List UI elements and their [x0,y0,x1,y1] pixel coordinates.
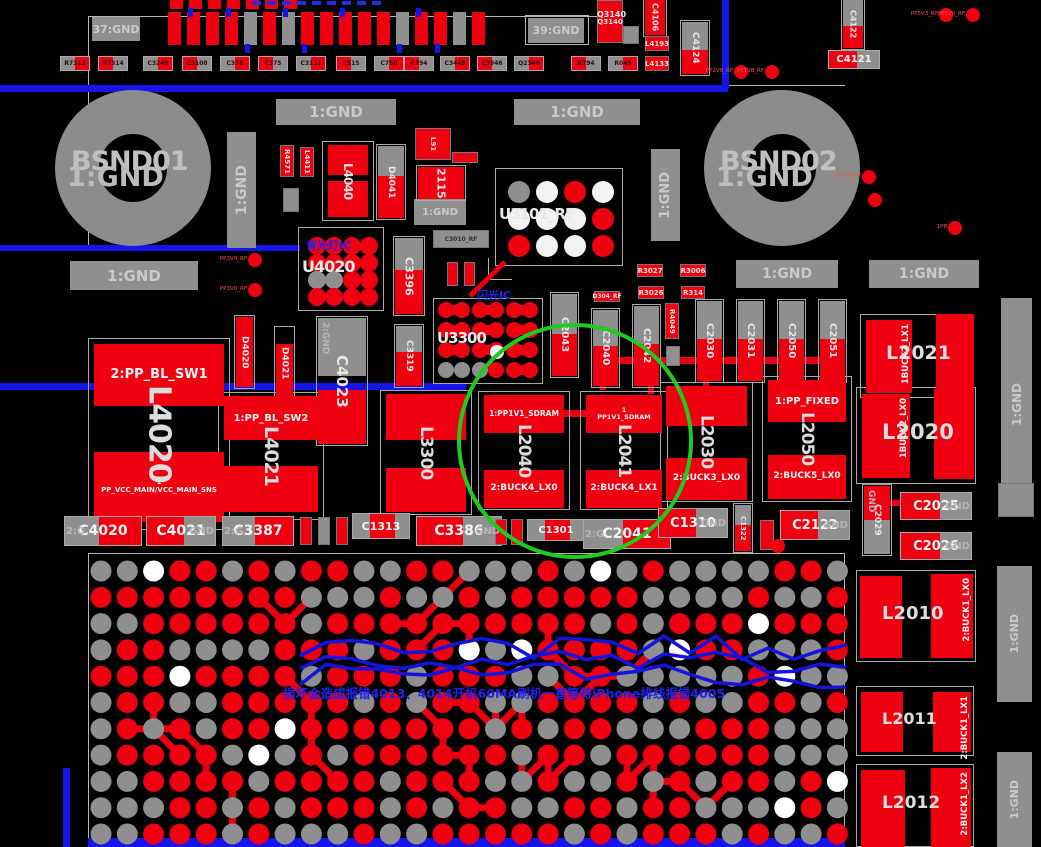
component-L4411[interactable]: L4411 [300,147,314,177]
bga-ball [748,718,769,739]
bga-ball [590,639,611,660]
shield-pad [396,12,409,45]
bga-ball [301,718,322,739]
bga-ball [564,561,585,582]
component-R314[interactable]: R314 [681,286,705,299]
bga-ball [459,745,480,766]
bga-ball [748,587,769,608]
bga-ball [538,639,559,660]
component-ref: C1310GND [658,508,728,538]
trace-blue [88,838,845,847]
component-ref: Q3140 [597,10,637,22]
bga-ball [301,771,322,792]
bga-ball [617,561,638,582]
bga-ball [774,771,795,792]
bga-ball [432,718,453,739]
bga-ball [538,797,559,818]
bga-ball [248,692,269,713]
bga-ball [538,613,559,634]
bga-ball [406,613,427,634]
truncated-blue-text [252,1,261,5]
bga-ball [354,718,375,739]
truncated-blue-text [267,1,276,5]
bga-ball [248,639,269,660]
bga-ball [669,797,690,818]
small-part [623,26,639,44]
component-R3006[interactable]: R3006 [680,264,706,277]
component-ref: C2043 [552,294,577,376]
trace-red [548,624,601,677]
bga-ball [327,587,348,608]
component-ref: C2026GND [900,532,972,560]
component-ref: C3396 [395,238,423,314]
bga-ball [91,771,112,792]
component-D304_RF[interactable]: D304_RF [594,291,620,302]
bga-ball [643,561,664,582]
bga-ball [617,771,638,792]
trace-blue [0,85,728,92]
bga-ball [722,613,743,634]
bga-ball [432,561,453,582]
component-ref: D4020 [236,317,253,387]
shield-pad [301,12,314,45]
bga-ball [354,745,375,766]
bga-ball [117,718,138,739]
bga-ball [472,302,488,318]
small-part [998,483,1034,517]
component-ref: L4040 [322,141,374,221]
component-ref: C2050 [779,301,804,381]
component-ref: L2041 [580,391,668,510]
bga-ball [511,797,532,818]
small-part [300,517,312,545]
bga-ball [774,561,795,582]
gnd-label: 1:GND [70,261,198,290]
shield-pad [170,0,183,9]
bga-ball [117,666,138,687]
bga-ball [669,771,690,792]
component-L91[interactable]: L91 [415,128,451,160]
bga-ball [91,587,112,608]
bga-ball [643,613,664,634]
bga-ball [196,639,217,660]
bga-ball [695,613,716,634]
component-ref: R045 [608,56,638,71]
bga-ball [91,639,112,660]
bga-ball [169,692,190,713]
bga-ball [196,561,217,582]
bga-ball [301,797,322,818]
gnd-label: 37:GND [92,17,140,41]
bga-ball [801,639,822,660]
bga-ball [722,639,743,660]
bga-ball [722,587,743,608]
bga-ball [643,797,664,818]
bga-ball [617,745,638,766]
bga-ball [275,561,296,582]
component-ref: C375 [258,56,288,71]
component-ref: C1313 [352,513,410,539]
bga-ball [722,771,743,792]
bga-ball [590,745,611,766]
bga-ball [275,587,296,608]
test-pad [948,221,962,235]
bga-ball [222,666,243,687]
bga-ball [590,587,611,608]
component-ref: C3249 [143,56,173,71]
component-ref: 2115 [418,167,464,199]
truncated-blue-text [372,1,381,5]
bga-ball [801,692,822,713]
small-part [666,346,680,366]
trace-blue [245,44,250,53]
component-ref: C4122 [843,0,863,48]
component-ref: C1322 [735,505,751,551]
bga-ball [406,718,427,739]
bga-ball [196,718,217,739]
trace-red [496,703,522,729]
bga-ball [222,587,243,608]
component-ref: C2122GND [780,510,850,540]
component-ref: R7314 [98,56,128,71]
bga-ball [327,718,348,739]
trace-red [417,624,470,650]
bga-ball [485,561,506,582]
bga-ball [564,797,585,818]
bga-ball [143,692,164,713]
shield-pad [358,12,371,45]
bga-ball [432,639,453,660]
bga-ball [327,771,348,792]
component-ref: C4021GND [146,516,216,546]
test-pad [248,253,262,267]
bga-ball [590,561,611,582]
trace-blue [188,8,193,17]
component-ref: L2021 [886,342,968,367]
bga-ball [564,613,585,634]
trace-red [417,703,470,782]
small-part [464,262,475,286]
component-ref: C2042 [634,306,659,386]
bga-ball [143,718,164,739]
bga-ball [380,613,401,634]
bga-ball [117,639,138,660]
trace-red [522,755,575,781]
component-ref: U4020 [302,257,382,279]
trace-blue [300,652,846,673]
bga-ball [169,797,190,818]
screw-hole-gnd-label: 1:GND [67,162,187,192]
component-R3026[interactable]: R3026 [638,286,664,299]
component-ref: C3108 [182,56,212,71]
bga-ball [222,692,243,713]
component-ref: L2012 [882,793,970,816]
shield-pad [263,12,276,45]
component-ref: L2011 [882,709,970,731]
component-ref: Q2348 [514,56,544,71]
bga-ball [327,639,348,660]
component-ref: C2030 [697,301,722,381]
component-ref: R794 [571,56,601,71]
bga-ball [669,639,690,660]
bga-ball [485,797,506,818]
bga-ball [380,561,401,582]
bga-ball [695,639,716,660]
backlight_ic-note: 背光灯IC [306,237,386,251]
bga-ball [617,639,638,660]
shield-pad [434,12,447,45]
component-ref: L3300 [380,390,472,515]
bga-ball [669,561,690,582]
bga-ball [564,587,585,608]
bga-ball [801,771,822,792]
component-R4571[interactable]: R4571 [280,145,294,177]
test-pad-label: PP3V0_RF [209,286,247,294]
component-ref: R7313 [60,56,90,71]
bga-ball [275,639,296,660]
bga-ball [801,561,822,582]
trace-blue [283,8,288,17]
test-pad-label: 1P8 [909,224,947,232]
bga-ball [695,587,716,608]
board-outline-line [88,553,845,554]
bga-ball [406,587,427,608]
component-ref: L2010 [882,603,972,627]
bga-ball [354,613,375,634]
bga-ball [169,666,190,687]
gnd-label: 1:GND [414,199,466,225]
bga-ball [722,561,743,582]
bga-ball [360,288,378,306]
trace-red [443,703,522,729]
component-ref: L4020 [88,338,230,530]
component-ref: L2040 [478,391,570,510]
component-ref: C394 [404,56,434,71]
shield-pad [320,12,333,45]
bga-ball [801,666,822,687]
bga-ball [301,587,322,608]
bga-ball [564,745,585,766]
bga-ball [248,745,269,766]
component-ref: C3946 [477,56,507,71]
bga-ball [117,561,138,582]
bga-ball [511,745,532,766]
bga-ball [275,718,296,739]
trace-red [154,703,180,756]
test-pad-label: PP1V8_RF [823,173,861,181]
bga-ball [722,745,743,766]
bga-ball [454,302,470,318]
bga-ball [564,181,586,203]
component-ref: D4021 [276,328,293,398]
component-R4049[interactable]: R4049 [665,303,679,339]
bga-ball [564,771,585,792]
bga-ball [327,797,348,818]
component-ref: C3386GND [416,516,502,546]
component-ref: C2031 [738,301,763,381]
bga-ball [117,771,138,792]
component-ref: C40232:GND [318,318,366,444]
bga-ball [643,639,664,660]
bga-ball [222,718,243,739]
component-L4193[interactable]: L4193 [645,36,669,51]
bga-ball [301,639,322,660]
bga-ball [117,745,138,766]
bga-ball [354,561,375,582]
bga-ball [508,181,530,203]
small-part [283,188,299,212]
bga-ball [511,561,532,582]
small-part [336,517,348,545]
bga-ball [91,613,112,634]
bga-ball [222,639,243,660]
bga-ball [774,797,795,818]
bga-ball [774,639,795,660]
bga-ball [485,745,506,766]
bga-ball [248,613,269,634]
bga-ball [695,797,716,818]
bga-ball [196,771,217,792]
component-C3010_RF[interactable]: C3010_RF [433,230,489,248]
bga-ball [196,587,217,608]
component-ref: C40202:G [64,516,142,546]
bga-ball [380,639,401,660]
bga-ball [774,718,795,739]
bga-ball [617,797,638,818]
bga-ball [643,771,664,792]
bga-ball [354,797,375,818]
bga-ball [459,587,480,608]
component-ref: C758 [374,56,404,71]
bga-ball [301,745,322,766]
bga-ball [801,613,822,634]
bga-ball [91,718,112,739]
bga-ball [406,745,427,766]
bga-ball [774,692,795,713]
component-ref: L2050 [762,376,852,502]
component-L4133[interactable]: L4133 [645,56,669,71]
bga-ball [275,797,296,818]
bga-ball [459,718,480,739]
truncated-blue-text [312,1,321,5]
bga-ball [438,362,454,378]
truncated-blue-text [357,1,366,5]
small-part [447,262,458,286]
small-part [452,152,478,163]
bga-ball [748,771,769,792]
bga-ball [722,718,743,739]
bga-ball [169,745,190,766]
truncated-blue-text [327,1,336,5]
bga-ball [511,639,532,660]
bga-ball [506,302,522,318]
bga-ball [248,718,269,739]
bga-ball [222,745,243,766]
component-ref: C3319 [396,326,422,386]
bga-ball [564,718,585,739]
component-ref: C4124 [682,22,708,74]
component-ref: D4041 [378,146,404,218]
bga-ball [485,613,506,634]
bga-ball [643,745,664,766]
bga-ball [143,613,164,634]
bga-ball [222,797,243,818]
component-ref: U3101_RF [499,205,621,227]
bga-ball [488,362,504,378]
board-outline-line [488,279,512,280]
bga-ball [275,771,296,792]
bga-ball [169,639,190,660]
bga-ball [380,587,401,608]
bga-ball [143,797,164,818]
bga-ball [327,745,348,766]
bga-ball [695,745,716,766]
bga-ball [669,587,690,608]
trace-blue [416,8,421,17]
bga-ball [748,639,769,660]
bga-ball [143,745,164,766]
bga-ball [117,587,138,608]
bga-ball [459,561,480,582]
board-outline-line [488,258,489,280]
bga-ball [748,745,769,766]
bga-ball [590,613,611,634]
bga-ball [774,613,795,634]
test-pad [966,8,980,22]
component-ref: L4021 [218,392,324,520]
bga-ball [327,613,348,634]
component-R3027[interactable]: R3027 [637,264,663,277]
screw-hole-gnd-label: 1:GND [716,162,836,192]
component-ref: C4106 [645,0,665,35]
shield-pad [208,0,221,9]
bga-ball [774,666,795,687]
component-ref: C2029GND [864,486,890,554]
shield-pad [244,12,257,45]
bga-ball [248,771,269,792]
bga-ball [196,745,217,766]
bga-ball [695,561,716,582]
component-ref: C2025GND [900,492,972,520]
bga-ball [143,561,164,582]
bga-ball [590,718,611,739]
trace-blue [226,8,231,17]
bga-ball [196,613,217,634]
gnd-label: 39:GND [528,18,584,43]
bga-ball [643,718,664,739]
bga-ball [801,587,822,608]
test-pad [248,283,262,297]
bga-ball [354,771,375,792]
bga-ball [438,302,454,318]
bga-ball [536,181,558,203]
bga-ball [301,613,322,634]
component-ref: C1301 [527,519,585,541]
shield-pad [168,12,181,45]
truncated-blue-text [297,1,306,5]
bga-ball [432,771,453,792]
shield-pad [377,12,390,45]
board-view: 损坏会造成报错4013、4014开机60MA刷机一直等待iPhone排线报错40… [0,0,1041,847]
bga-ball [117,797,138,818]
bga-ball [143,666,164,687]
bga-ball [248,561,269,582]
bga-ball [406,561,427,582]
gnd-label: 1:GND [514,99,640,125]
component-ref: C4121 [828,50,880,69]
bga-ball [222,771,243,792]
test-pad [862,170,876,184]
